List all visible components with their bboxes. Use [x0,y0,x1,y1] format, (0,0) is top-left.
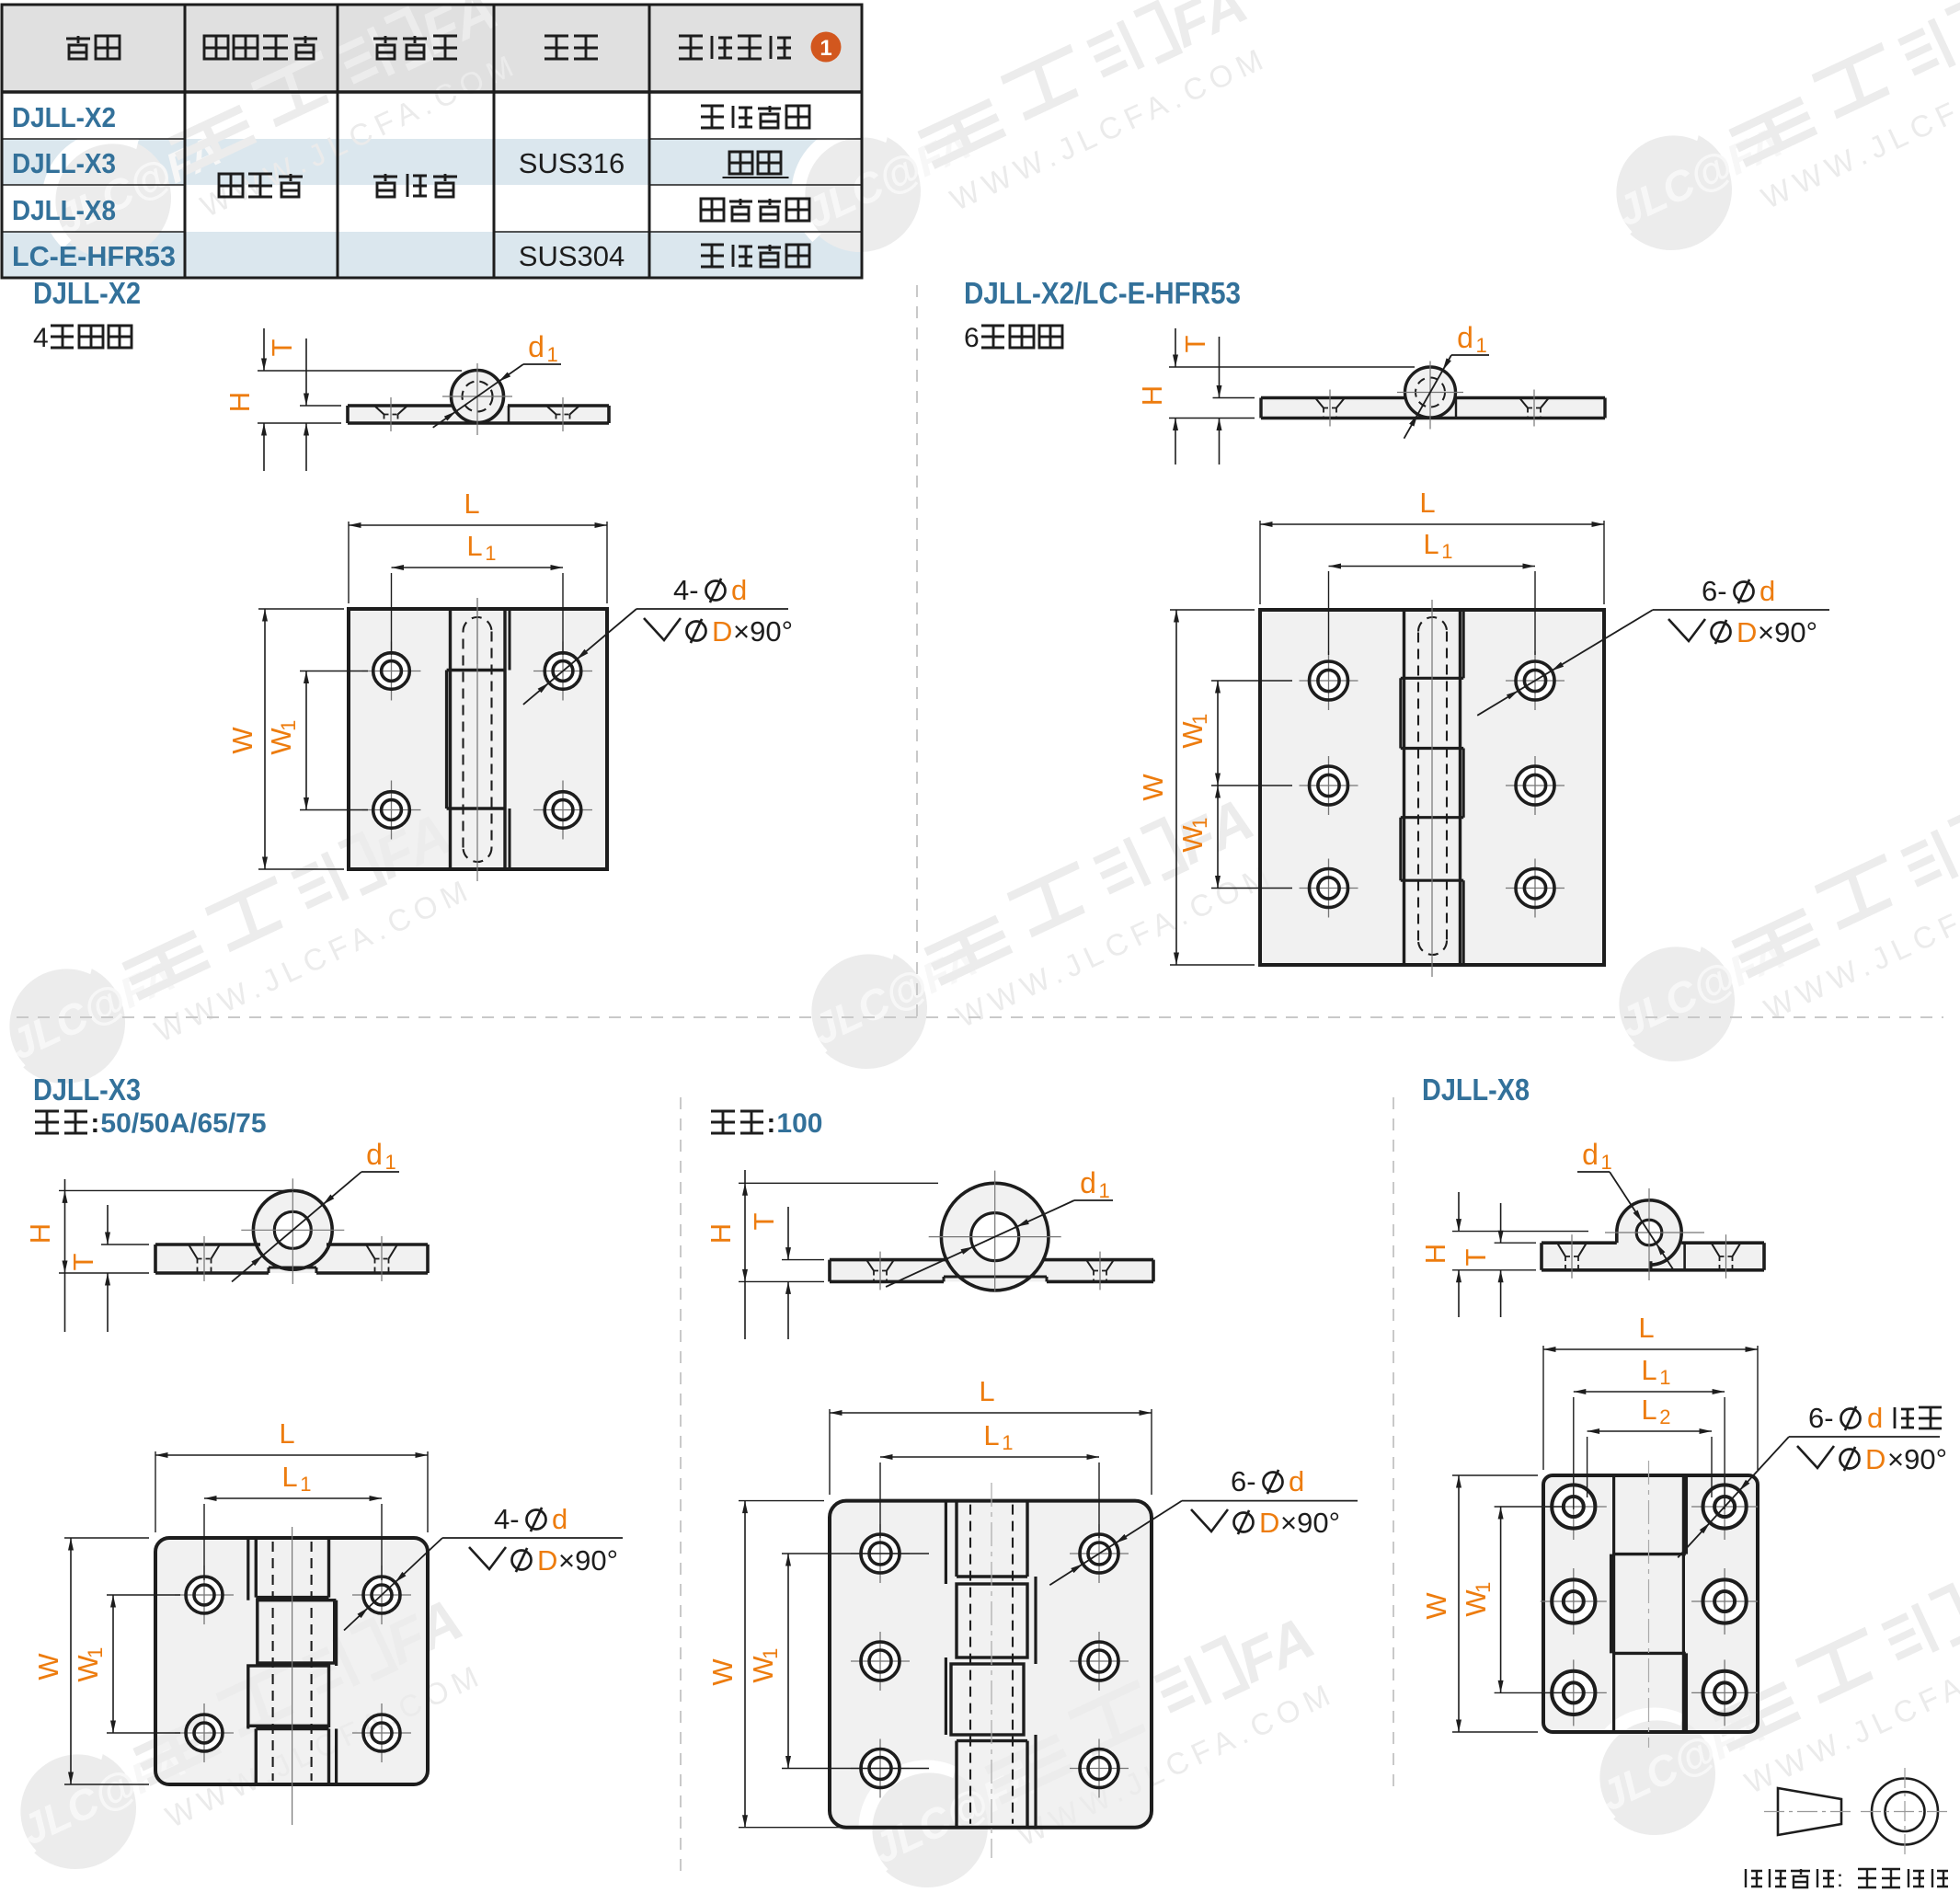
svg-text:H: H [705,1223,737,1244]
svg-text:DJLL-X3: DJLL-X3 [12,147,116,179]
svg-text:DJLL-X2: DJLL-X2 [33,276,141,310]
svg-text:H: H [1419,1244,1451,1264]
svg-text:L: L [979,1375,994,1407]
svg-text:4-: 4- [673,574,699,606]
svg-text:2: 2 [1659,1405,1670,1428]
svg-text:6-: 6- [1808,1402,1834,1434]
svg-text:1: 1 [385,1151,396,1174]
svg-text:1: 1 [759,1648,782,1659]
svg-text:L: L [464,487,479,520]
svg-text:1: 1 [547,343,558,366]
svg-text:DJLL-X8: DJLL-X8 [1422,1072,1530,1107]
svg-text:d: d [1867,1402,1883,1434]
svg-text:T: T [1179,335,1211,352]
svg-text:1: 1 [300,1473,311,1496]
svg-text:DJLL-X2/LC-E-HFR53: DJLL-X2/LC-E-HFR53 [964,276,1241,310]
svg-text:D: D [712,615,732,648]
svg-text:×90°: ×90° [1758,616,1817,648]
svg-text:1: 1 [1188,818,1211,829]
svg-text:d: d [1289,1465,1304,1497]
svg-text::: : [90,1108,99,1139]
svg-text:4-: 4- [494,1503,520,1535]
svg-text:1: 1 [1601,1151,1612,1174]
svg-text:d: d [528,330,544,363]
svg-text:1: 1 [84,1647,107,1658]
svg-text:1: 1 [1441,540,1452,563]
svg-text:W: W [1420,1592,1452,1620]
svg-text:W: W [226,727,258,754]
svg-text:D: D [1865,1443,1885,1475]
svg-text:L: L [279,1417,294,1450]
svg-text:100: 100 [776,1108,822,1139]
svg-text:1: 1 [1476,334,1487,357]
svg-text:L: L [1419,487,1435,519]
svg-text:DJLL-X3: DJLL-X3 [33,1072,141,1107]
svg-text:SUS316: SUS316 [519,147,625,179]
svg-text:50/50A/65/75: 50/50A/65/75 [100,1108,266,1139]
svg-text:1: 1 [1472,1582,1495,1593]
svg-text:1: 1 [1188,714,1211,725]
svg-text:1: 1 [1002,1431,1013,1454]
svg-text:W: W [1137,774,1169,801]
svg-text:4: 4 [33,323,49,353]
svg-text:d: d [1080,1166,1096,1199]
svg-text:H: H [1136,385,1168,406]
svg-text:LC-E-HFR53: LC-E-HFR53 [12,240,176,272]
svg-text:d: d [1582,1138,1599,1171]
svg-text:d: d [366,1138,383,1171]
svg-text:DJLL-X2: DJLL-X2 [12,101,116,133]
svg-text:d: d [1759,575,1775,607]
svg-text:H: H [224,392,256,412]
svg-text:1: 1 [1659,1366,1670,1389]
svg-text:d: d [731,574,747,606]
svg-text:T: T [748,1212,780,1230]
svg-text:DJLL-X8: DJLL-X8 [12,194,116,226]
svg-text:6: 6 [964,323,980,353]
svg-text:L: L [1638,1312,1654,1344]
svg-text:W: W [32,1653,64,1680]
svg-text:T: T [266,338,298,356]
svg-text::: : [1837,1866,1843,1892]
svg-text:×90°: ×90° [558,1544,618,1577]
svg-text:L: L [1641,1354,1656,1386]
svg-text:1: 1 [485,542,496,565]
svg-text:L: L [466,530,482,562]
svg-text:T: T [67,1253,99,1270]
svg-text:L: L [1423,528,1438,560]
svg-text:L: L [281,1461,297,1493]
svg-text:d: d [1457,321,1473,354]
svg-text:L: L [1641,1394,1656,1426]
svg-text:1: 1 [1099,1179,1110,1202]
svg-text:d: d [552,1503,567,1535]
svg-text:1: 1 [277,720,300,731]
svg-text:1: 1 [820,36,831,61]
svg-text:D: D [537,1544,557,1577]
svg-text:×90°: ×90° [1280,1507,1340,1539]
svg-text:D: D [1736,616,1757,648]
svg-text:6-: 6- [1702,575,1727,607]
svg-text:×90°: ×90° [733,615,793,648]
svg-text:T: T [1460,1248,1492,1266]
svg-text:D: D [1259,1507,1279,1539]
svg-text:SUS304: SUS304 [519,240,625,272]
svg-text:L: L [983,1419,999,1451]
svg-text:×90°: ×90° [1887,1443,1947,1475]
svg-text:W: W [706,1658,739,1686]
svg-text:H: H [24,1223,56,1244]
svg-text::: : [766,1108,775,1139]
svg-text:6-: 6- [1231,1465,1256,1497]
